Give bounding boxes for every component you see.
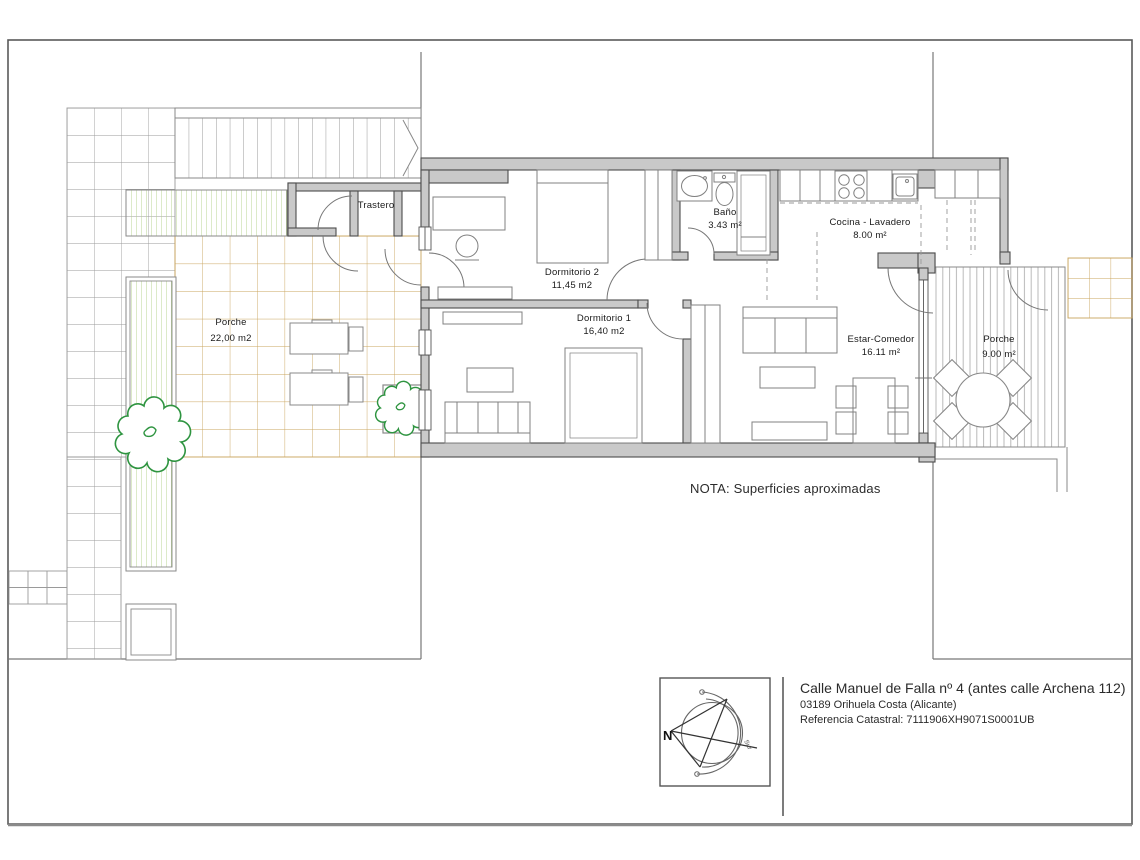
compass-north-label: N — [663, 728, 672, 743]
room-label-dormitorio-1: Dormitorio 1 16,40 m2 — [577, 312, 631, 338]
room-label-dormitorio-2: Dormitorio 2 11,45 m2 — [545, 266, 599, 292]
room-name: Dormitorio 2 — [545, 266, 599, 279]
title-cadastral-reference: Referencia Catastral: 7111906XH9071S0001… — [800, 714, 1034, 726]
drawing-sheet: N Sur Trastero Dormitorio 2 11,45 m2 Dor… — [0, 0, 1140, 860]
stairs-strip — [175, 108, 421, 178]
floor-plan: N Sur — [0, 0, 1140, 860]
title-city: 03189 Orihuela Costa (Alicante) — [800, 699, 957, 711]
title-address: Calle Manuel de Falla nº 4 (antes calle … — [800, 680, 1126, 696]
room-name: Dormitorio 1 — [577, 312, 631, 325]
room-area: 11,45 m2 — [545, 279, 599, 292]
room-area: 16.11 m² — [847, 346, 914, 359]
room-name: Baño — [708, 206, 742, 219]
room-label-estar: Estar-Comedor 16.11 m² — [847, 333, 914, 359]
room-name: Cocina - Lavadero — [829, 216, 910, 229]
room-area: 3.43 m² — [708, 219, 742, 232]
room-label-trastero: Trastero — [358, 199, 395, 212]
room-label-bano: Baño 3.43 m² — [708, 206, 742, 232]
compass-rose: N Sur — [660, 678, 770, 786]
room-area: 8.00 m² — [829, 229, 910, 242]
room-name: Porche — [982, 332, 1016, 347]
room-area: 22,00 m2 — [210, 331, 251, 347]
room-label-cocina: Cocina - Lavadero 8.00 m² — [829, 216, 910, 242]
room-area: 16,40 m2 — [577, 325, 631, 338]
room-name: Porche — [210, 315, 251, 331]
room-name: Trastero — [358, 199, 395, 212]
room-label-porche-der: Porche 9.00 m² — [982, 332, 1016, 362]
surfaces-note: NOTA: Superficies aproximadas — [690, 481, 881, 496]
room-label-porche-izq: Porche 22,00 m2 — [210, 315, 251, 347]
room-name: Estar-Comedor — [847, 333, 914, 346]
room-area: 9.00 m² — [982, 347, 1016, 362]
